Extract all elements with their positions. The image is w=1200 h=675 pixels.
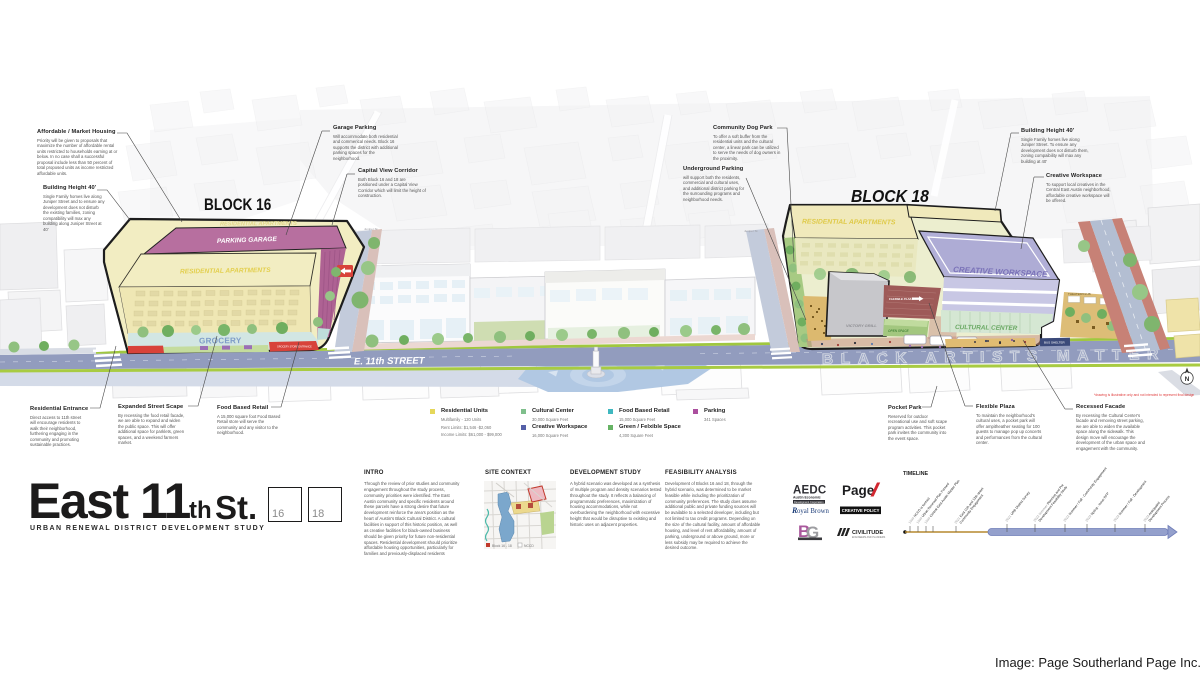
svg-text:Development Feasibility Study: Development Feasibility Study xyxy=(1038,485,1069,523)
svg-text:TIMELINE: TIMELINE xyxy=(903,471,929,477)
svg-text:FLEXIBLE PLAZA: FLEXIBLE PLAZA xyxy=(889,297,913,301)
svg-text:BUS SHELTER: BUS SHELTER xyxy=(1044,341,1065,345)
svg-text:2021 East 11th and 12th stree: 2021 East 11th and 12th street xyxy=(954,487,985,525)
svg-text:2021 URB District Survey: 2021 URB District Survey xyxy=(1005,490,1031,522)
svg-text:1999 Urban Renewal Plan Forme: 1999 Urban Renewal Plan Formed xyxy=(916,482,951,525)
svg-text:THEATER/CLUB: THEATER/CLUB xyxy=(1068,292,1091,296)
svg-text:OPEN SPACE: OPEN SPACE xyxy=(888,329,910,333)
svg-text:CULTURAL CENTER: CULTURAL CENTER xyxy=(955,324,1018,332)
svg-text:N: N xyxy=(1185,376,1190,383)
svg-text:GROCERY STORE ENTRANCE: GROCERY STORE ENTRANCE xyxy=(277,345,312,348)
svg-text:2022 Summer / Fall - Communit: 2022 Summer / Fall - Community Engagemen… xyxy=(1063,467,1108,523)
svg-text:Block 16 - 18: Block 16 - 18 xyxy=(492,544,512,548)
svg-text:2022 Summer Planning and Pre: 2022 Summer Planning and Pre xyxy=(1033,483,1065,523)
svg-text:CREATIVE POLICY: CREATIVE POLICY xyxy=(842,508,880,513)
svg-text:GROCERY: GROCERY xyxy=(199,336,242,345)
svg-text:RESIDENTIAL APARTMENTS: RESIDENTIAL APARTMENTS xyxy=(802,219,896,227)
svg-text:Austin Economic: Austin Economic xyxy=(793,496,821,500)
svg-text:Development Corporation: Development Corporation xyxy=(794,500,824,504)
svg-text:NCCD: NCCD xyxy=(524,544,534,548)
svg-text:2023 Summer / Fall - Developm: 2023 Summer / Fall - Development xyxy=(1113,480,1148,523)
svg-text:VICTORY GRILL: VICTORY GRILL xyxy=(846,323,877,328)
svg-text:Page: Page xyxy=(842,483,875,498)
svg-text:oyal Brown: oyal Brown xyxy=(797,508,830,515)
svg-text:Juniper St: Juniper St xyxy=(364,227,378,231)
svg-text:Juniper St: Juniper St xyxy=(744,229,758,233)
svg-text:1999 Central East Austin Mast: 1999 Central East Austin Master Plan xyxy=(924,479,961,525)
svg-text:ENGINEERS AND PLANNERS: ENGINEERS AND PLANNERS xyxy=(852,536,886,539)
svg-text:E. 11th STREET: E. 11th STREET xyxy=(354,355,426,367)
svg-text:2023 Spring - Issue RFP: 2023 Spring - Issue RFP xyxy=(1085,491,1111,523)
